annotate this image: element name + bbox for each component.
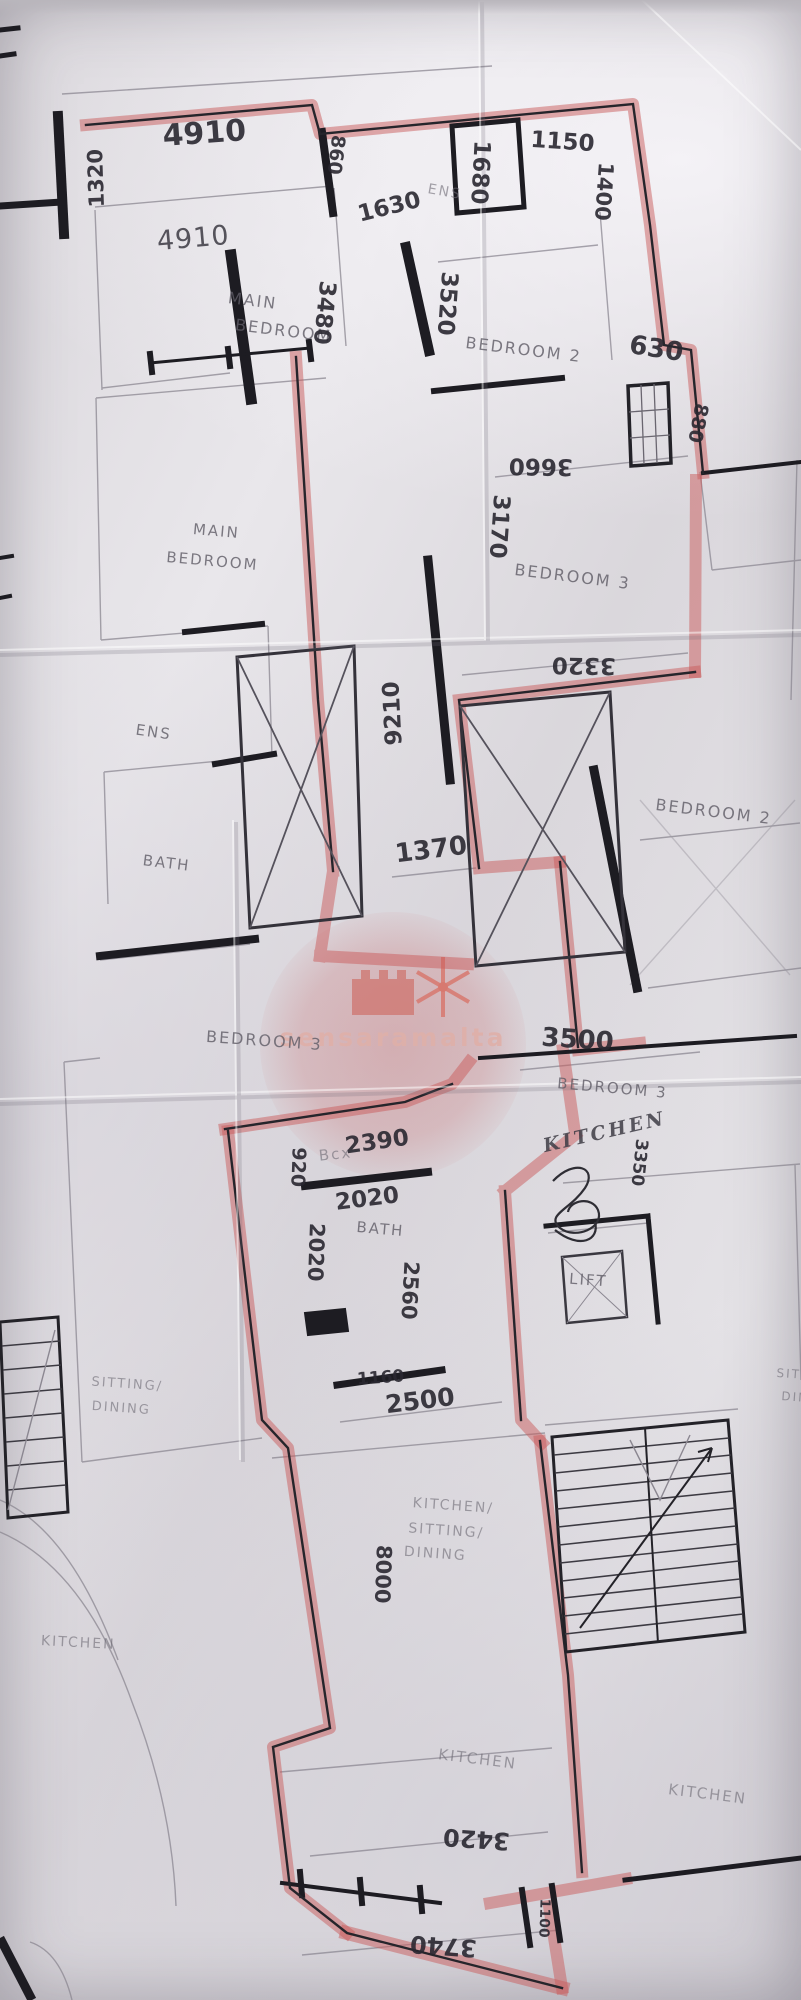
staircase-main <box>552 1420 745 1652</box>
room-bath-mid: BATH <box>356 1218 405 1240</box>
dim-3320: 3320 <box>552 651 616 678</box>
dim-1160: 1160 <box>356 1366 405 1389</box>
dim-3420: 3420 <box>442 1823 511 1856</box>
dim-2560: 2560 <box>396 1261 423 1321</box>
dim-8000: 8000 <box>370 1545 396 1604</box>
room-kitchen-sitting-dining-l1: KITCHEN/ <box>412 1495 494 1517</box>
red-wall-left-lower-chain <box>228 1131 347 1933</box>
castle-icon <box>352 970 414 1015</box>
dim-1320: 1320 <box>83 149 109 208</box>
room-main-bedroom-2-l1: MAIN <box>192 520 240 542</box>
room-ens-left: ENS <box>135 721 173 744</box>
room-sitting-dining-left-l1: SITTING/ <box>91 1375 164 1395</box>
room-bedroom3-mid: BEDROOM 3 <box>514 560 632 593</box>
dim-9210: 9210 <box>378 681 407 746</box>
dim-3660: 3660 <box>509 452 573 479</box>
dim-2020-v: 2020 <box>303 1223 329 1282</box>
dim-3740: 3740 <box>409 1930 478 1963</box>
room-kitchen-left: KITCHEN <box>41 1633 116 1653</box>
dim-1630: 1630 <box>355 187 423 228</box>
shaft-1 <box>237 646 362 928</box>
dim-3520: 3520 <box>432 271 462 337</box>
dim-1100: 1100 <box>535 1898 552 1938</box>
room-kitchen-right: KITCHEN <box>667 1780 748 1807</box>
room-lift: LIFT <box>569 1270 608 1291</box>
dim-1680: 1680 <box>465 140 494 205</box>
dim-880: 880 <box>683 402 712 445</box>
dim-4910-room: 4910 <box>156 220 231 257</box>
dim-2020-h: 2020 <box>334 1182 401 1216</box>
dim-920: 920 <box>286 1147 309 1187</box>
floor-plan-drawing: sensaramalta <box>0 0 801 2000</box>
dim-630: 630 <box>627 330 685 368</box>
duct-hatch-box <box>628 383 671 466</box>
floor-plan-photo: sensaramalta <box>0 0 801 2000</box>
dim-1150: 1150 <box>530 127 596 157</box>
room-bedroom2-right: BEDROOM 2 <box>655 795 773 828</box>
dim-3480: 3480 <box>308 280 341 346</box>
room-kitchen-sitting-dining-l2: SITTING/ <box>408 1520 485 1541</box>
room-kitchen-sitting-dining-l3: DINING <box>403 1544 467 1564</box>
dim-4910-top: 4910 <box>161 113 247 154</box>
room-bath-left: BATH <box>142 851 192 875</box>
red-wall-top-chain <box>86 104 703 473</box>
dim-3170: 3170 <box>484 494 514 560</box>
room-main-bedroom-2-l2: BEDROOM <box>166 548 260 574</box>
dim-1400: 1400 <box>590 161 618 221</box>
dim-1370: 1370 <box>393 831 468 870</box>
dim-2500: 2500 <box>384 1382 457 1419</box>
room-sitting-dining-left-l2: DINING <box>91 1399 151 1418</box>
staircase-left <box>0 1317 68 1518</box>
room-kitchen-mid: KITCHEN <box>437 1745 518 1772</box>
shaft-2 <box>460 692 625 966</box>
dim-3350: 3350 <box>627 1138 652 1187</box>
dim-3500: 3500 <box>540 1023 614 1058</box>
room-sitting-right-l1: SITT <box>776 1366 801 1382</box>
room-sitting-right-l2: DIN <box>781 1389 801 1405</box>
